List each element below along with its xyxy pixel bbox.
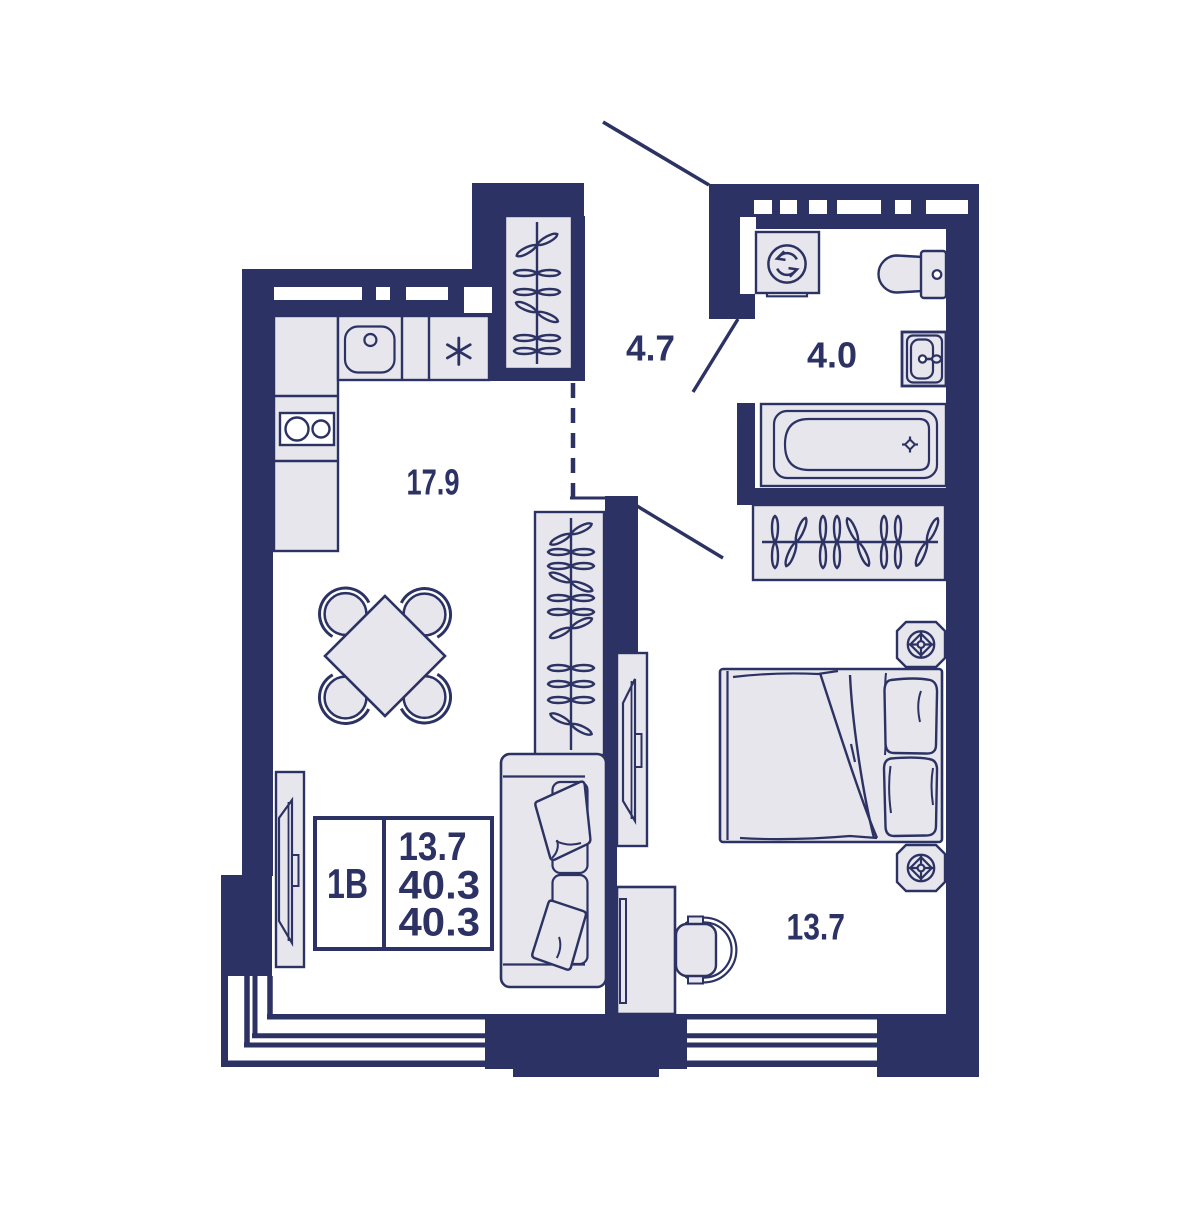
- svg-text:13.7: 13.7: [787, 907, 846, 948]
- svg-text:13.7: 13.7: [399, 825, 467, 869]
- svg-text:4.7: 4.7: [626, 328, 675, 369]
- svg-text:1B: 1B: [327, 860, 368, 907]
- svg-text:4.0: 4.0: [807, 335, 857, 376]
- svg-text:17.9: 17.9: [407, 462, 460, 503]
- svg-text:40.3: 40.3: [399, 901, 481, 945]
